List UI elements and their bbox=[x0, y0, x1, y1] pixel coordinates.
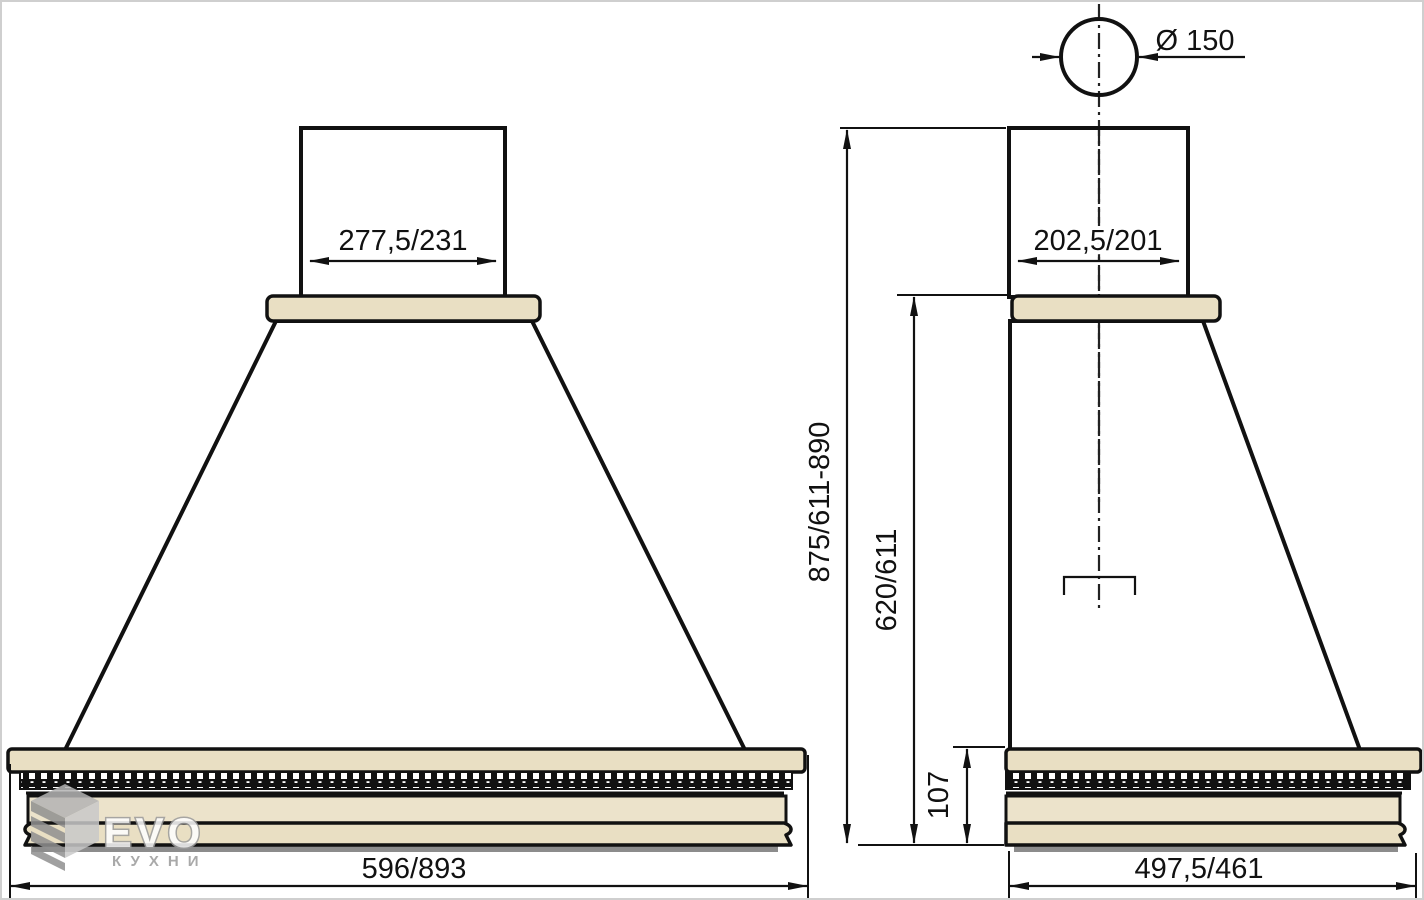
front-canopy bbox=[65, 321, 745, 750]
side-cornice-bottom-molding bbox=[1006, 823, 1405, 845]
front-cornice-top-band bbox=[8, 749, 805, 772]
side-cornice bbox=[1006, 749, 1421, 849]
side-duct-depth-dimension-label: 202,5/201 bbox=[1033, 225, 1162, 257]
front-view: 277,5/231 596/893 bbox=[8, 128, 808, 898]
front-duct-width-dimension-label: 277,5/231 bbox=[338, 225, 467, 257]
front-width-dimension-label: 596/893 bbox=[362, 853, 467, 885]
side-canopy bbox=[1010, 321, 1360, 750]
side-shelf bbox=[1012, 296, 1220, 321]
cooker-hood-drawing: 277,5/231 596/893 Ø 150 bbox=[2, 2, 1422, 898]
side-dentil-molding bbox=[1006, 772, 1410, 789]
cornice-height-dimension-label: 107 bbox=[923, 771, 955, 819]
side-cornice-fascia bbox=[1006, 796, 1400, 823]
logo-cube-icon bbox=[31, 784, 99, 871]
front-duct bbox=[301, 128, 505, 297]
side-view: Ø 150 202,5/201 875/611-890 620/611 bbox=[804, 4, 1421, 898]
front-shelf bbox=[267, 296, 540, 321]
logo-subtitle-text: КУХНИ bbox=[112, 853, 207, 870]
technical-drawing-canvas: 277,5/231 596/893 Ø 150 bbox=[0, 0, 1424, 900]
canopy-height-dimension-label: 620/611 bbox=[871, 529, 903, 632]
overall-height-dimension-label: 875/611-890 bbox=[804, 422, 836, 583]
logo-brand-text: EVO bbox=[104, 809, 205, 856]
front-dentil-molding bbox=[20, 772, 792, 789]
depth-dimension-label: 497,5/461 bbox=[1134, 853, 1263, 885]
flue-diameter-label: Ø 150 bbox=[1156, 25, 1235, 57]
side-cornice-top-band bbox=[1006, 749, 1421, 772]
